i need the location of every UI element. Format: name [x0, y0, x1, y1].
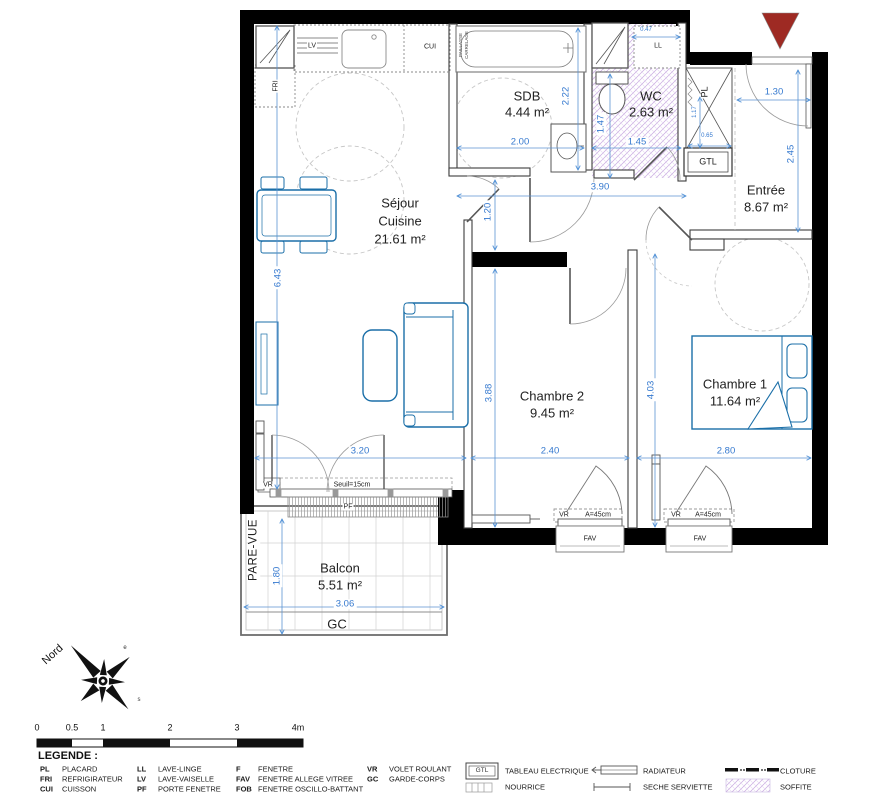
room-area-wc: 2.63 m² [629, 106, 673, 119]
compass-east-label: e [123, 645, 126, 651]
legend-label-volet-roulant: VOLET ROULANT [389, 765, 451, 774]
dim-sdb-width: 2.00 [509, 137, 532, 147]
label-a45-ch1: A=45cm [694, 512, 722, 519]
legend-nourrice-icon [466, 783, 492, 792]
legend-label-radiateur: RADIATEUR [643, 767, 686, 776]
legend-label-fav: FENETRE ALLEGE VITREE [258, 775, 353, 784]
dim-ch2-width: 2.40 [539, 446, 562, 456]
dim-hall-width: 3.90 [589, 182, 612, 192]
dim-balcon-width: 3.06 [334, 599, 357, 609]
legend-label-soffite: SOFFITE [780, 783, 812, 792]
label-ll: LL [653, 43, 663, 50]
room-label-sdb: SDB [514, 90, 541, 103]
dim-wc-width: 1.45 [626, 137, 649, 147]
compass-south-label: s [138, 697, 141, 703]
scale-tick-3: 3 [234, 724, 239, 733]
legend-abbr-fob: FOB [236, 785, 252, 794]
legend-radiator-icon [592, 766, 637, 774]
label-pf: PF [343, 504, 354, 511]
sofa [404, 303, 468, 427]
label-fri: FRI [273, 79, 280, 92]
dim-ch2-depth: 3.88 [484, 382, 494, 405]
toilet-icon [596, 72, 628, 114]
window-top-sdb [592, 23, 628, 68]
label-pare-vue: PARE-VUE [248, 519, 260, 581]
legend-label-porte-fenetre: PORTE FENETRE [158, 785, 221, 794]
legend-abbr-lv: LV [137, 775, 146, 784]
dim-balcon-depth: 1.80 [272, 565, 282, 588]
dim-entree-depth: 2.45 [786, 143, 796, 166]
dim-pl-depth: 1.17 [692, 105, 698, 119]
legend-label-lave-linge: LAVE-LINGE [158, 765, 202, 774]
dim-sejour-depth: 6.43 [273, 267, 283, 290]
legend-label-tableau-electrique: TABLEAU ELECTRIQUE [505, 767, 589, 776]
label-gtl: GTL [699, 158, 717, 167]
label-fav-ch1: FAV [693, 536, 708, 543]
scale-tick-1: 1 [100, 724, 105, 733]
label-vr-ch2: VR [558, 512, 570, 519]
legend-abbr-cui: CUI [40, 785, 53, 794]
legend-cloture-icon [725, 768, 779, 772]
room-label-sejour-2: Cuisine [378, 215, 421, 228]
room-label-chambre1: Chambre 1 [703, 378, 767, 391]
legend-abbr-pf: PF [137, 785, 147, 794]
dim-entry-door: 1.30 [763, 87, 786, 97]
legend-soffite-icon [726, 779, 770, 792]
compass-icon [48, 621, 155, 730]
sink-icon [342, 30, 386, 68]
legend-abbr-pl: PL [40, 765, 50, 774]
legend-abbr-gc: GC [367, 775, 378, 784]
pillow [787, 344, 807, 378]
bathtub-icon [456, 26, 586, 72]
room-label-balcon: Balcon [320, 562, 360, 575]
legend-label-cuisson: CUISSON [62, 785, 96, 794]
legend-abbr-fri: FRI [40, 775, 52, 784]
room-label-entree: Entrée [747, 184, 785, 197]
window-top-left [256, 26, 294, 68]
legend-label-lave-vaiselle: LAVE-VAISELLE [158, 775, 214, 784]
label-vr-sejour: VR [262, 482, 274, 489]
pillow [787, 388, 807, 422]
scale-tick-2: 2 [167, 724, 172, 733]
coffee-table [363, 330, 397, 401]
dim-ch1-depth: 4.03 [646, 379, 656, 402]
label-pl: PL [701, 85, 710, 98]
label-paillasse: PAILLASSE [459, 33, 464, 57]
label-gc: GC [327, 618, 347, 631]
dim-wc-depth: 1.47 [596, 113, 606, 136]
label-seuil: Seuil=15cm [333, 482, 372, 489]
legend-label-fenetre: FENETRE [258, 765, 293, 774]
entrance-door-leaf [806, 64, 811, 128]
entrance-arrow-icon [762, 13, 799, 49]
room-label-wc: WC [640, 90, 662, 103]
dim-sejour-width: 3.20 [349, 446, 372, 456]
room-label-chambre2: Chambre 2 [520, 390, 584, 403]
label-a45-ch2: A=45cm [584, 512, 612, 519]
floor-plan-page: Séjour Cuisine 21.61 m² SDB 4.44 m² WC 2… [0, 0, 875, 800]
dim-pl-width: 0.65 [700, 133, 714, 139]
scale-tick-05: 0.5 [66, 724, 79, 733]
dim-ll-width: 0.47 [639, 27, 653, 33]
legend-abbr-f: F [236, 765, 241, 774]
dining-table [257, 177, 336, 253]
tv-unit [256, 322, 278, 405]
legend-abbr-vr: VR [367, 765, 377, 774]
dim-ch1-width: 2.80 [715, 446, 738, 456]
room-area-chambre1: 11.64 m² [710, 395, 760, 408]
dim-hall-depth: 1.20 [483, 201, 493, 224]
room-area-chambre2: 9.45 m² [530, 407, 574, 420]
dishwasher-icon [297, 38, 338, 53]
legend-label-nourrice: NOURRICE [505, 783, 545, 792]
room-area-balcon: 5.51 m² [318, 579, 362, 592]
label-cui: CUI [423, 44, 437, 51]
legend-label-placard: PLACARD [62, 765, 97, 774]
legend-gtl-box-text: GTL [476, 768, 489, 775]
legend-abbr-ll: LL [137, 765, 146, 774]
legend-label-cloture: CLOTURE [780, 767, 816, 776]
legend-label-fob: FENETRE OSCILLO-BATTANT [258, 785, 363, 794]
label-lv: LV [307, 43, 317, 50]
scale-tick-0: 0 [34, 724, 39, 733]
label-vr-ch1: VR [670, 512, 682, 519]
pf-threshold [288, 497, 448, 517]
legend-title: LEGENDE : [38, 750, 98, 762]
label-fav-ch2: FAV [583, 536, 598, 543]
room-area-sejour: 21.61 m² [374, 233, 425, 246]
dim-sdb-depth: 2.22 [561, 85, 571, 108]
room-area-entree: 8.67 m² [744, 201, 788, 214]
legend-seche-serviette-icon [594, 783, 630, 791]
scale-tick-4m: 4m [292, 724, 305, 733]
legend-abbr-fav: FAV [236, 775, 250, 784]
scale-bar [37, 739, 303, 747]
label-carrelage: CARRELAGE [465, 31, 470, 59]
legend-label-seche-serviette: SECHE SERVIETTE [643, 783, 712, 792]
legend-label-refrigirateur: REFRIGIRATEUR [62, 775, 123, 784]
legend-label-garde-corps: GARDE-CORPS [389, 775, 445, 784]
room-label-sejour-1: Séjour [381, 197, 419, 210]
room-area-sdb: 4.44 m² [505, 106, 549, 119]
